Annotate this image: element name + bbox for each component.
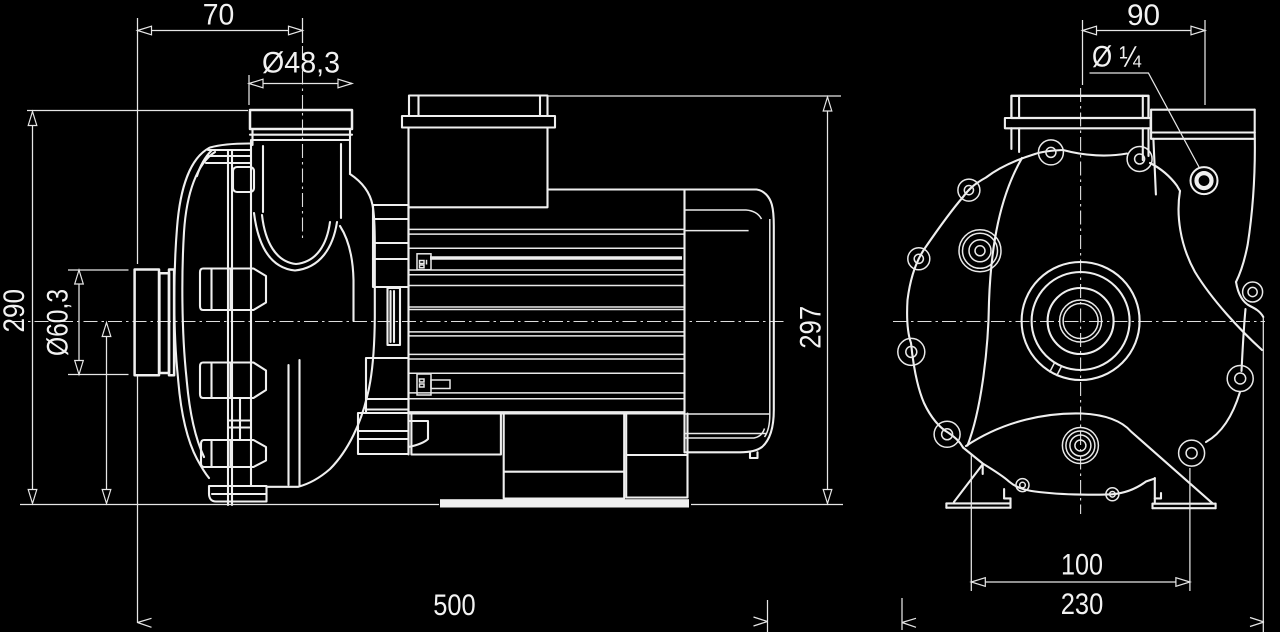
svg-text:100: 100 — [1061, 549, 1103, 582]
svg-text:70: 70 — [203, 0, 235, 32]
svg-text:290: 290 — [0, 289, 31, 333]
svg-text:Ø60,3: Ø60,3 — [42, 289, 75, 356]
svg-text:230: 230 — [1061, 588, 1104, 621]
svg-text:Ø ¼: Ø ¼ — [1092, 41, 1142, 74]
svg-text:297: 297 — [795, 306, 828, 349]
svg-text:500: 500 — [433, 589, 475, 622]
svg-text:Ø48,3: Ø48,3 — [262, 47, 340, 80]
svg-text:90: 90 — [1127, 0, 1160, 32]
